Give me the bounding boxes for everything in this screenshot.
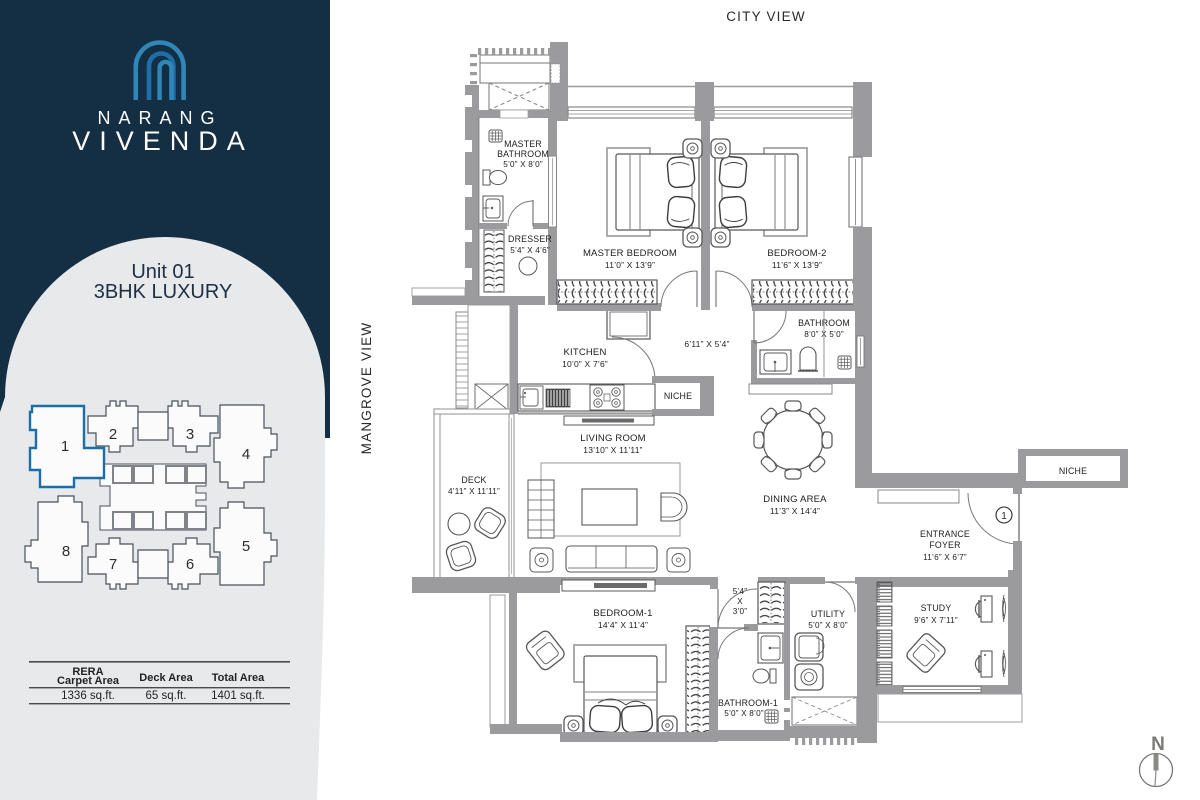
svg-text:3’0”: 3’0” xyxy=(733,607,748,616)
svg-text:NICHE: NICHE xyxy=(664,391,692,401)
svg-text:N: N xyxy=(1151,734,1165,755)
svg-text:BATHROOM: BATHROOM xyxy=(497,149,549,159)
svg-text:5: 5 xyxy=(242,538,250,555)
svg-text:KITCHEN: KITCHEN xyxy=(563,347,606,358)
svg-text:3BHK LUXURY: 3BHK LUXURY xyxy=(94,281,233,303)
svg-text:6: 6 xyxy=(186,556,194,573)
svg-text:NICHE: NICHE xyxy=(1059,466,1087,476)
svg-text:10’0” X 7’6”: 10’0” X 7’6” xyxy=(562,359,608,369)
svg-text:MASTER: MASTER xyxy=(504,139,542,149)
svg-text:9’6” X 7’11”: 9’6” X 7’11” xyxy=(914,616,958,625)
svg-text:MANGROVE VIEW: MANGROVE VIEW xyxy=(359,322,374,455)
svg-text:1: 1 xyxy=(61,438,69,455)
svg-text:DRESSER: DRESSER xyxy=(508,234,552,244)
svg-text:5’0” X 8’0”: 5’0” X 8’0” xyxy=(808,621,848,630)
svg-text:5’0” X 8’0”: 5’0” X 8’0” xyxy=(503,160,543,169)
svg-text:1336 sq.ft.: 1336 sq.ft. xyxy=(61,690,115,702)
svg-text:2: 2 xyxy=(109,426,117,443)
svg-text:BEDROOM-1: BEDROOM-1 xyxy=(593,608,652,619)
svg-text:NARANG: NARANG xyxy=(97,108,222,128)
svg-text:11’0” X 13’9”: 11’0” X 13’9” xyxy=(605,260,655,270)
svg-text:VIVENDA: VIVENDA xyxy=(72,126,254,156)
svg-text:STUDY: STUDY xyxy=(921,603,952,613)
svg-text:5’4”: 5’4” xyxy=(733,587,748,596)
svg-text:Total Area: Total Area xyxy=(212,672,265,684)
svg-text:LIVING ROOM: LIVING ROOM xyxy=(580,433,646,444)
svg-text:7: 7 xyxy=(109,556,117,573)
svg-text:3: 3 xyxy=(186,426,194,443)
svg-text:65 sq.ft.: 65 sq.ft. xyxy=(146,690,187,702)
svg-text:DECK: DECK xyxy=(461,475,486,485)
svg-text:MASTER BEDROOM: MASTER BEDROOM xyxy=(583,248,677,259)
svg-text:11’3” X 14’4”: 11’3” X 14’4” xyxy=(770,506,820,516)
svg-text:CITY VIEW: CITY VIEW xyxy=(726,9,806,24)
svg-text:11’6” X 13’9”: 11’6” X 13’9” xyxy=(772,260,822,270)
svg-text:BEDROOM-2: BEDROOM-2 xyxy=(767,248,826,259)
svg-text:5’0” X 8’0”: 5’0” X 8’0” xyxy=(724,709,764,718)
svg-text:8: 8 xyxy=(62,543,70,560)
svg-text:BATHROOM-1: BATHROOM-1 xyxy=(718,698,778,708)
svg-text:Carpet Area: Carpet Area xyxy=(57,675,120,687)
svg-text:Deck Area: Deck Area xyxy=(139,672,193,684)
svg-text:14’4” X 11’4”: 14’4” X 11’4” xyxy=(598,620,648,630)
svg-text:X: X xyxy=(737,597,743,606)
svg-text:DINING AREA: DINING AREA xyxy=(763,494,827,505)
svg-text:4: 4 xyxy=(242,446,250,463)
svg-text:4’11” X 11’11”: 4’11” X 11’11” xyxy=(448,487,500,496)
svg-text:Unit 01: Unit 01 xyxy=(131,261,194,283)
svg-text:1: 1 xyxy=(1001,511,1007,522)
svg-text:13’10” X 11’11”: 13’10” X 11’11” xyxy=(583,445,642,455)
svg-text:5’4” X 4’6”: 5’4” X 4’6” xyxy=(510,246,550,255)
svg-text:UTILITY: UTILITY xyxy=(811,609,845,619)
svg-text:1401 sq.ft.: 1401 sq.ft. xyxy=(211,690,265,702)
svg-text:6’11” X 5’4”: 6’11” X 5’4” xyxy=(684,339,729,349)
svg-text:FOYER: FOYER xyxy=(929,540,960,550)
svg-text:11’6” X 6’7”: 11’6” X 6’7” xyxy=(923,553,967,562)
svg-text:ENTRANCE: ENTRANCE xyxy=(920,529,970,539)
